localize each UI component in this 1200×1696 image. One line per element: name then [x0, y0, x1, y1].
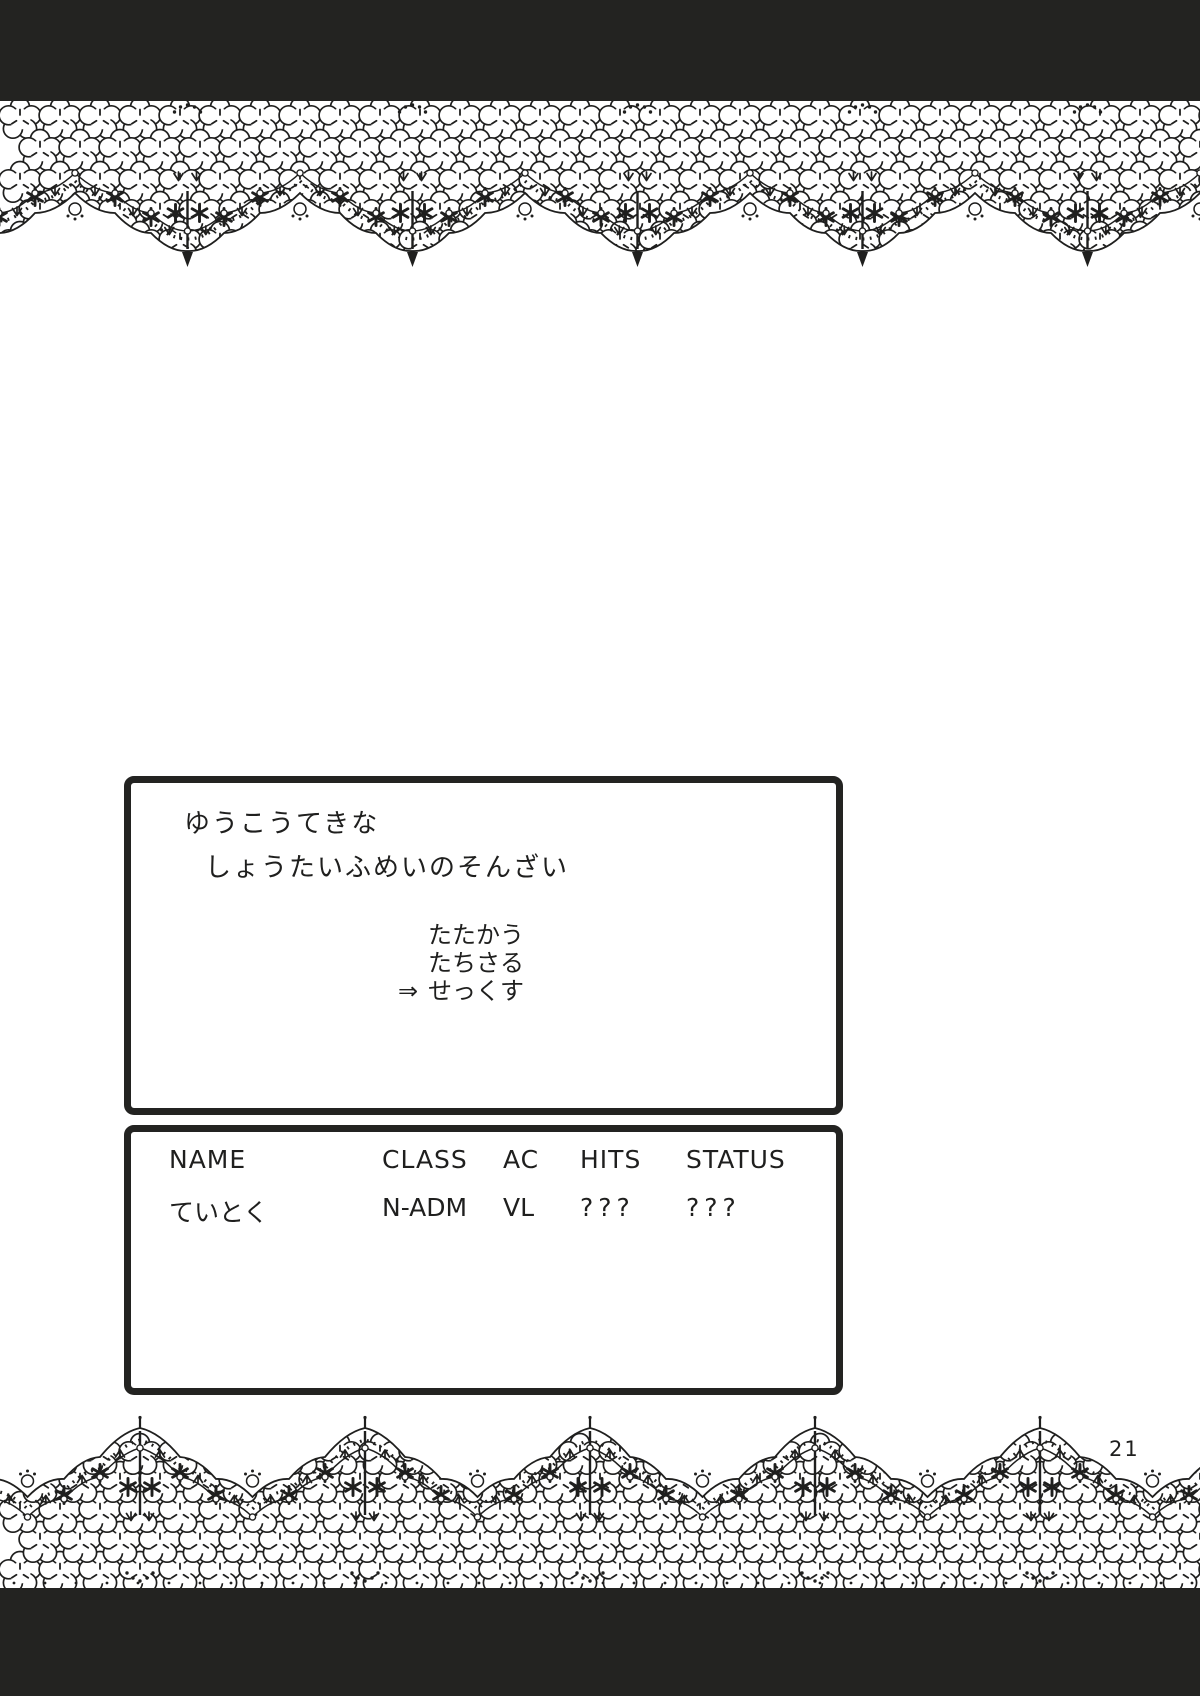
menu-item-label: たちさる	[428, 949, 524, 977]
bottom-lace-pattern	[0, 1416, 1200, 1588]
menu-item-fight[interactable]: たたかう	[398, 921, 524, 949]
cell-ac: VL	[503, 1193, 580, 1229]
menu-cursor: ⇒	[398, 977, 428, 1005]
header-status: STATUS	[686, 1145, 786, 1174]
top-lace-border	[0, 101, 1200, 273]
header-hits: HITS	[580, 1145, 686, 1174]
menu-item-label: たたかう	[428, 921, 524, 949]
cell-hits: ???	[580, 1193, 686, 1229]
menu-item-sex[interactable]: ⇒ せっくす	[398, 977, 524, 1005]
manga-page: ゆうこうてきな しょうたいふめいのそんざい たたかう たちさる ⇒ せっくす N…	[0, 0, 1200, 1696]
header-ac: AC	[503, 1145, 580, 1174]
cell-class: N-ADM	[382, 1193, 503, 1229]
menu-item-label: せっくす	[428, 977, 524, 1005]
battle-menu: たたかう たちさる ⇒ せっくす	[398, 921, 524, 1005]
battle-message-line-2: しょうたいふめいのそんざい	[205, 847, 569, 884]
header-class: CLASS	[382, 1145, 503, 1174]
top-lace-pattern	[0, 101, 1200, 267]
header-name: NAME	[169, 1145, 382, 1174]
battle-message-window: ゆうこうてきな しょうたいふめいのそんざい たたかう たちさる ⇒ せっくす	[124, 776, 843, 1115]
bottom-lace-border	[0, 1415, 1200, 1588]
battle-message-line-1: ゆうこうてきな	[184, 803, 379, 840]
page-number: 21	[1104, 1437, 1145, 1461]
top-black-bar	[0, 0, 1200, 101]
cell-status: ???	[686, 1193, 741, 1229]
status-header-row: NAME CLASS AC HITS STATUS	[131, 1145, 836, 1174]
cell-name: ていとく	[169, 1193, 382, 1229]
bottom-black-bar	[0, 1588, 1200, 1696]
enemy-status-window: NAME CLASS AC HITS STATUS ていとく N-ADM VL …	[124, 1125, 843, 1395]
status-row: ていとく N-ADM VL ??? ???	[131, 1193, 836, 1229]
menu-item-leave[interactable]: たちさる	[398, 949, 524, 977]
